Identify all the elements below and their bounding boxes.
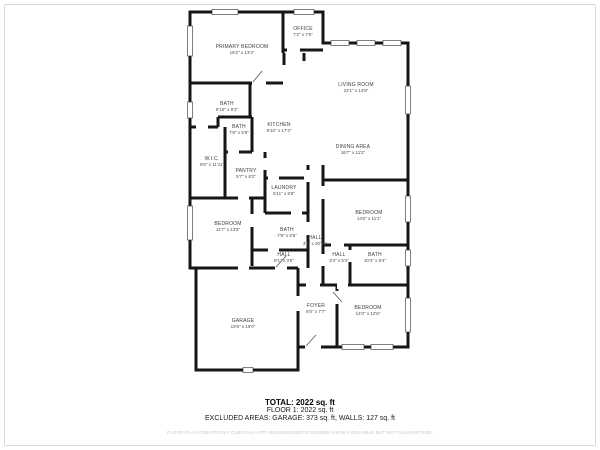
area-summary: TOTAL: 2022 sq. ft FLOOR 1: 2022 sq. ft … <box>0 398 600 436</box>
room-dims: 9'10" x 17'3" <box>267 128 292 134</box>
room-label-kitchen: KITCHEN 9'10" x 17'3" <box>267 122 292 134</box>
floor-plan-page: PRIMARY BEDROOM 16'2" x 13'3" OFFICE 7'2… <box>0 0 600 450</box>
room-label-foyer: FOYER 6'0" x 7'7" <box>306 303 326 315</box>
room-label-living-room: LIVING ROOM 22'1" x 14'8" <box>338 82 374 94</box>
room-dims: 8'6" x 11'11" <box>200 162 224 168</box>
room-dims: 8'1" x 3'6" <box>274 258 294 264</box>
room-dims: 3'2" x 20'11" <box>303 241 327 247</box>
room-dims: 16'7" x 11'2" <box>336 150 370 156</box>
room-dims: 3'4" x 5'4" <box>329 258 349 264</box>
room-dims: 7'6" x 5'9" <box>229 130 249 136</box>
room-label-bath-primary: BATH 9'10" x 9'2" <box>216 101 238 113</box>
room-label-office: OFFICE 7'2" x 7'5" <box>293 26 313 38</box>
disclaimer-text: FLOOR PLAN CREATED BY CUBICASA APP. MEAS… <box>0 430 600 436</box>
room-dims: 16'2" x 13'3" <box>216 50 269 56</box>
total-area-text: TOTAL: 2022 sq. ft <box>0 398 600 407</box>
room-dims: 22'1" x 14'8" <box>338 88 374 94</box>
room-label-bath-middle: BATH 7'9" x 5'5" <box>277 227 297 239</box>
room-label-bedroom-left: BEDROOM 11'7" x 13'5" <box>214 221 241 233</box>
room-dims: 6'0" x 7'7" <box>306 309 326 315</box>
room-dims: 7'9" x 5'5" <box>277 233 297 239</box>
room-label-pantry: PANTRY 5'7" x 8'2" <box>235 168 256 180</box>
room-label-dining-area: DINING AREA 16'7" x 11'2" <box>336 144 370 156</box>
room-label-primary-bedroom: PRIMARY BEDROOM 16'2" x 13'3" <box>216 44 269 56</box>
room-dims: 19'6" x 19'0" <box>231 324 256 330</box>
room-label-wic: W.I.C. 8'6" x 11'11" <box>200 156 224 168</box>
floor-plan-drawing <box>0 0 600 450</box>
room-dims: 10'4" x 5'4" <box>364 258 386 264</box>
room-dims: 7'2" x 7'5" <box>293 32 313 38</box>
room-dims: 5'7" x 8'2" <box>235 174 256 180</box>
room-label-bath-right: BATH 10'4" x 5'4" <box>364 252 386 264</box>
room-label-bedroom-bottom: BEDROOM 14'0" x 12'6" <box>354 305 381 317</box>
floor-area-text: FLOOR 1: 2022 sq. ft <box>0 407 600 415</box>
room-label-garage: GARAGE 19'6" x 19'0" <box>231 318 256 330</box>
excluded-areas-text: EXCLUDED AREAS: GARAGE: 373 sq. ft, WALL… <box>0 415 600 423</box>
room-label-bedroom-right: BEDROOM 14'0" x 11'1" <box>355 210 382 222</box>
room-label-bath-2: BATH 7'6" x 5'9" <box>229 124 249 136</box>
room-dims: 14'0" x 12'6" <box>354 311 381 317</box>
room-dims: 5'11" x 6'8" <box>271 191 296 197</box>
room-dims: 11'7" x 13'5" <box>214 227 241 233</box>
room-label-hall-small: HALL 3'4" x 5'4" <box>329 252 349 264</box>
room-label-hall-lower: HALL 8'1" x 3'6" <box>274 252 294 264</box>
room-dims: 14'0" x 11'1" <box>355 216 382 222</box>
room-label-laundry: LAUNDRY 5'11" x 6'8" <box>271 185 296 197</box>
room-dims: 9'10" x 9'2" <box>216 107 238 113</box>
room-label-hall-long: HALL 3'2" x 20'11" <box>303 235 327 247</box>
